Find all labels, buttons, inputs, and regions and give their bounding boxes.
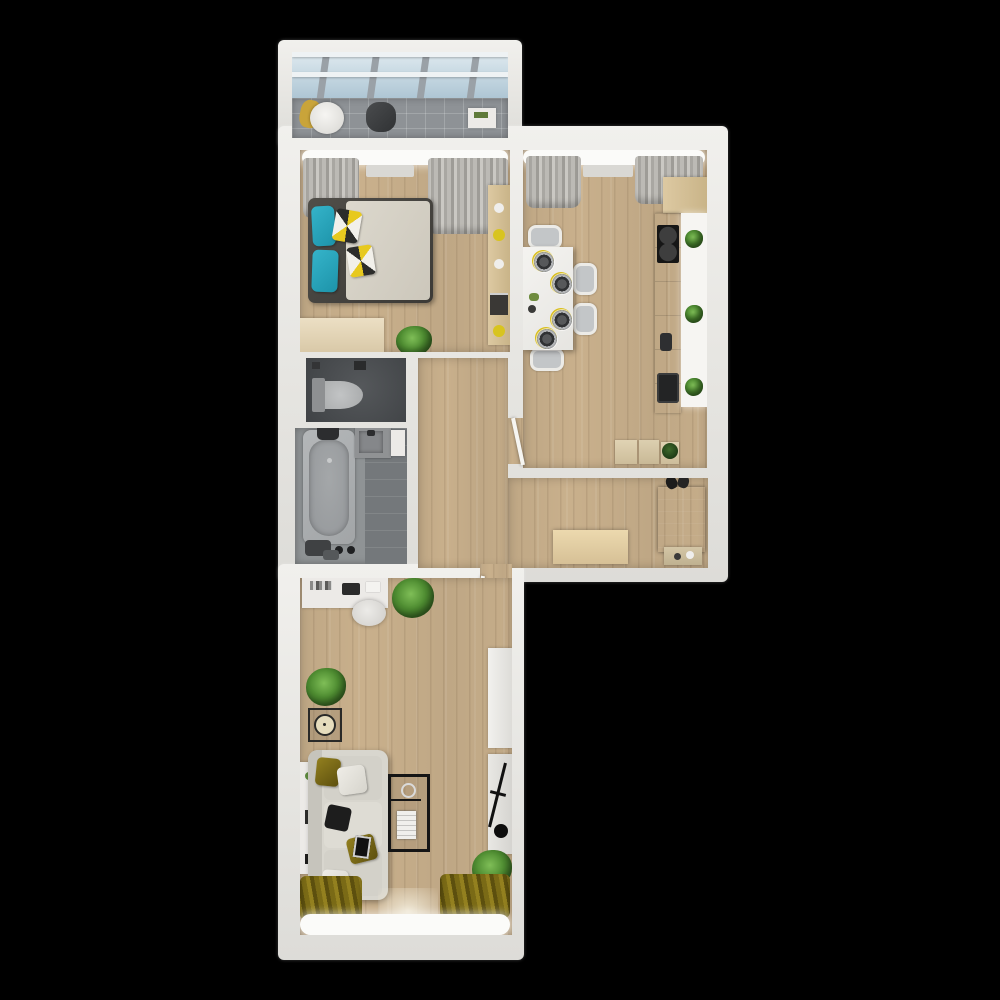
toilet-bowl: [325, 381, 363, 409]
room-living: [300, 578, 512, 935]
wc-accessory: [312, 362, 320, 369]
balcony-table-books: [474, 112, 488, 118]
black-pillow: [324, 804, 352, 832]
wire-side-table: [308, 708, 342, 742]
bath-shelf: [391, 430, 405, 456]
desk-laptop: [342, 583, 360, 595]
patterned-pillow: [331, 208, 362, 244]
basin-faucet: [367, 430, 375, 436]
dining-chair-bottom: [530, 348, 564, 371]
hall-wardrobe: [658, 487, 705, 552]
dining-table: [523, 247, 573, 350]
balcony-side-table: [468, 108, 496, 128]
floor-cushion: [615, 440, 637, 464]
clock: [314, 714, 336, 736]
decor-ball-white: [494, 203, 504, 213]
floor-plan-canvas: [0, 0, 1000, 1000]
magazines: [397, 811, 416, 839]
clock-center: [323, 723, 326, 726]
balcony-lounge-chair: [310, 102, 344, 134]
console-decor: [674, 553, 681, 560]
easel-base: [494, 824, 508, 838]
decor-ball-yellow: [493, 325, 505, 337]
living-window-pelmet: [300, 914, 510, 935]
table-centerpiece-dark: [528, 305, 536, 313]
room-hallway-corridor: [418, 358, 508, 568]
plate: [537, 329, 557, 349]
plate: [552, 310, 572, 330]
room-bathroom: [295, 428, 407, 564]
hall-console-table: [664, 547, 702, 565]
kitchen-curtain-left: [526, 156, 581, 208]
shelf-books: [490, 293, 508, 315]
desk-papers: [366, 582, 380, 592]
room-wc: [306, 358, 406, 422]
table-centerpiece-green: [529, 293, 539, 301]
living-curtain-right: [440, 874, 510, 918]
plate: [534, 252, 554, 272]
white-pillow: [336, 764, 368, 796]
roof-frame-band: [292, 52, 508, 57]
console-decor: [686, 551, 694, 559]
bedroom-plant: [396, 326, 432, 352]
bathtub-basin: [309, 440, 349, 536]
wash-basin: [355, 428, 391, 458]
living-plant-left: [306, 668, 346, 706]
bedroom-wall-shelf: [488, 185, 510, 345]
room-kitchen: [523, 150, 707, 468]
bath-faucet: [317, 428, 339, 440]
room-balcony: [292, 52, 508, 138]
cooktop: [657, 225, 679, 263]
roof-frame-band: [292, 72, 508, 77]
dining-chair-right-1: [573, 263, 597, 295]
dining-chair-top: [528, 225, 562, 249]
bath-item: [347, 546, 355, 554]
bathtub: [303, 430, 355, 544]
room-bedroom: [300, 150, 510, 352]
shoe-cabinet: [553, 530, 628, 564]
dining-chair-right-2: [573, 303, 597, 335]
plate: [552, 274, 572, 294]
kitchen-window-glare: [583, 165, 633, 177]
balcony-storage-bag: [366, 102, 396, 132]
bathtub-drain: [327, 458, 332, 463]
toilet-tank: [312, 378, 325, 412]
kitchen-faucet: [660, 333, 672, 351]
tv-console-lower: [488, 754, 512, 854]
decor-ball-yellow: [493, 229, 505, 241]
balcony-glass-roof: [292, 52, 508, 98]
tablet: [353, 835, 372, 859]
coffee-table: [388, 774, 430, 852]
bed: [308, 198, 433, 303]
patterned-pillow: [346, 244, 376, 278]
kitchen-upper-cabinet: [663, 177, 707, 213]
cushion-plant: [662, 443, 678, 459]
kitchen-sink: [657, 373, 679, 403]
bedroom-window-glare: [366, 165, 414, 177]
coffee-table-shelf-line: [391, 799, 421, 801]
decor-ball-white: [494, 259, 504, 269]
living-plant-top: [392, 578, 434, 618]
bedroom-dresser: [300, 318, 384, 352]
desk-books: [310, 581, 332, 590]
teal-pillow: [311, 250, 338, 293]
floor-cushion: [639, 440, 659, 464]
wc-accessory: [354, 361, 366, 370]
desk-chair: [352, 600, 386, 626]
bath-item: [323, 550, 339, 560]
tv-console-upper: [488, 648, 512, 748]
coffee-table-logo: [401, 783, 416, 798]
room-hallway-lower: [508, 478, 708, 568]
teal-pillow: [311, 205, 336, 246]
